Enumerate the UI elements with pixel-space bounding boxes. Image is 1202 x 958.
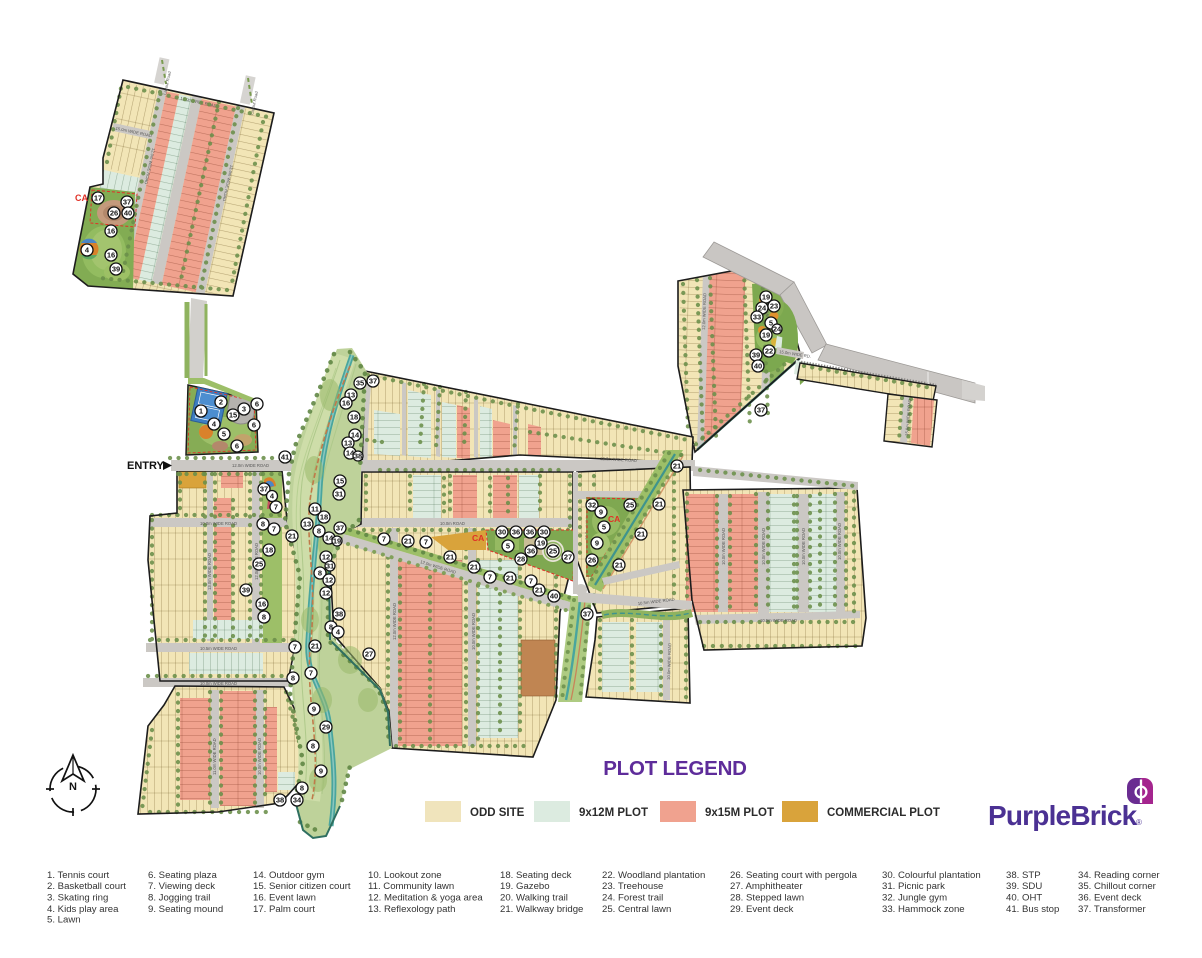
svg-text:41. Bus stop: 41. Bus stop (1006, 904, 1059, 915)
svg-text:10.0m WIDE ROAD: 10.0m WIDE ROAD (200, 521, 237, 526)
svg-text:6: 6 (252, 421, 256, 430)
svg-text:39: 39 (752, 351, 760, 360)
svg-text:CA: CA (75, 193, 88, 203)
svg-text:35. Chillout corner: 35. Chillout corner (1078, 881, 1157, 892)
svg-text:18: 18 (265, 546, 273, 555)
svg-text:21: 21 (673, 462, 681, 471)
svg-text:7: 7 (274, 503, 278, 512)
svg-text:12: 12 (325, 576, 333, 585)
svg-text:ENTRY: ENTRY (127, 460, 165, 472)
svg-text:24: 24 (773, 325, 782, 334)
svg-text:12.0m WIDE ROAD: 12.0m WIDE ROAD (232, 463, 269, 468)
svg-text:24. Forest trail: 24. Forest trail (602, 893, 663, 904)
svg-text:34: 34 (293, 796, 302, 805)
svg-text:7: 7 (488, 573, 492, 582)
svg-text:21: 21 (506, 574, 514, 583)
svg-text:35: 35 (356, 379, 364, 388)
svg-text:4. Kids play area: 4. Kids play area (47, 904, 119, 915)
svg-text:10.0m WIDE ROAD: 10.0m WIDE ROAD (200, 681, 237, 686)
svg-text:8: 8 (311, 742, 315, 751)
svg-text:27. Amphitheater: 27. Amphitheater (730, 881, 803, 892)
svg-text:10.5m WIDE ROAD: 10.5m WIDE ROAD (760, 618, 797, 623)
svg-text:25: 25 (255, 560, 263, 569)
svg-text:26: 26 (588, 556, 596, 565)
svg-text:16: 16 (258, 600, 266, 609)
svg-text:8. Jogging trail: 8. Jogging trail (148, 893, 210, 904)
svg-text:21: 21 (470, 563, 478, 572)
svg-text:5. Lawn: 5. Lawn (47, 915, 81, 926)
svg-text:21: 21 (637, 530, 645, 539)
svg-text:9x15M PLOT: 9x15M PLOT (705, 807, 774, 819)
svg-text:16: 16 (342, 399, 350, 408)
svg-text:37: 37 (757, 406, 765, 415)
svg-text:17. Palm court: 17. Palm court (253, 904, 315, 915)
svg-text:37: 37 (369, 377, 377, 386)
svg-text:17: 17 (94, 194, 102, 203)
svg-text:16. Event lawn: 16. Event lawn (253, 893, 316, 904)
svg-text:14. Outdoor gym: 14. Outdoor gym (253, 870, 324, 881)
svg-text:9: 9 (599, 508, 603, 517)
svg-text:21: 21 (288, 532, 296, 541)
svg-text:7: 7 (424, 538, 428, 547)
svg-text:PLOT LEGEND: PLOT LEGEND (603, 757, 747, 780)
svg-text:ODD SITE: ODD SITE (470, 807, 525, 819)
svg-text:23. Treehouse: 23. Treehouse (602, 881, 663, 892)
svg-text:CA: CA (608, 514, 620, 524)
svg-text:30: 30 (540, 528, 548, 537)
svg-text:28. Stepped lawn: 28. Stepped lawn (730, 893, 804, 904)
svg-text:18: 18 (320, 513, 328, 522)
svg-text:10.0m WIDE ROAD: 10.0m WIDE ROAD (257, 738, 262, 775)
svg-text:33. Hammock zone: 33. Hammock zone (882, 904, 965, 915)
svg-text:16: 16 (107, 227, 115, 236)
svg-text:31. Picnic park: 31. Picnic park (882, 881, 945, 892)
svg-text:40: 40 (124, 209, 132, 218)
svg-text:37. Transformer: 37. Transformer (1078, 904, 1147, 915)
svg-text:27: 27 (564, 553, 572, 562)
svg-text:9: 9 (595, 539, 599, 548)
svg-text:22. Woodland plantation: 22. Woodland plantation (602, 870, 705, 881)
svg-text:36: 36 (512, 528, 520, 537)
svg-text:38. STP: 38. STP (1006, 870, 1041, 881)
svg-text:29. Event deck: 29. Event deck (730, 904, 794, 915)
svg-text:7. Viewing deck: 7. Viewing deck (148, 881, 215, 892)
svg-text:41: 41 (281, 453, 289, 462)
svg-text:21: 21 (615, 561, 623, 570)
svg-text:9. Seating mound: 9. Seating mound (148, 904, 223, 915)
svg-text:39: 39 (242, 586, 250, 595)
svg-text:®: ® (1136, 818, 1142, 827)
svg-text:10.5m WIDE ROAD: 10.5m WIDE ROAD (200, 646, 237, 651)
svg-text:32. Jungle gym: 32. Jungle gym (882, 893, 947, 904)
svg-text:21: 21 (535, 586, 543, 595)
svg-text:32: 32 (588, 501, 596, 510)
svg-text:13: 13 (344, 439, 352, 448)
svg-text:34. Reading corner: 34. Reading corner (1078, 870, 1160, 881)
svg-text:7: 7 (293, 643, 297, 652)
svg-text:18: 18 (350, 413, 358, 422)
svg-text:PurpleBrick: PurpleBrick (988, 800, 1138, 831)
svg-text:40: 40 (550, 592, 558, 601)
svg-text:9: 9 (312, 705, 316, 714)
svg-text:6: 6 (255, 400, 259, 409)
svg-text:10.0m ROAD: 10.0m ROAD (440, 521, 465, 526)
svg-text:COMMERCIAL PLOT: COMMERCIAL PLOT (827, 807, 940, 819)
svg-text:20. Walking trail: 20. Walking trail (500, 893, 568, 904)
svg-text:1. Tennis court: 1. Tennis court (47, 870, 110, 881)
svg-text:10.0m WIDE ROAD: 10.0m WIDE ROAD (471, 613, 476, 650)
svg-text:25: 25 (549, 547, 557, 556)
svg-text:33: 33 (753, 313, 761, 322)
svg-text:12.0m WIDE ROAD: 12.0m WIDE ROAD (392, 603, 397, 640)
svg-text:10.0m WIDE ROAD: 10.0m WIDE ROAD (721, 528, 726, 565)
svg-text:13.0m WIDE ROAD: 13.0m WIDE ROAD (207, 553, 212, 590)
svg-text:27: 27 (365, 650, 373, 659)
svg-text:11.0m WIDE ROAD: 11.0m WIDE ROAD (212, 738, 217, 775)
svg-text:12. Meditation & yoga area: 12. Meditation & yoga area (368, 893, 483, 904)
svg-text:21: 21 (655, 500, 663, 509)
svg-text:11. Community lawn: 11. Community lawn (368, 881, 454, 892)
svg-text:30. Colourful plantation: 30. Colourful plantation (882, 870, 981, 881)
svg-text:3. Skating ring: 3. Skating ring (47, 893, 108, 904)
svg-text:40: 40 (754, 362, 762, 371)
svg-text:21: 21 (404, 537, 412, 546)
svg-text:N: N (69, 781, 77, 793)
svg-text:15: 15 (336, 477, 344, 486)
svg-text:21. Walkway bridge: 21. Walkway bridge (500, 904, 583, 915)
svg-text:7: 7 (529, 577, 533, 586)
svg-text:7: 7 (309, 669, 313, 678)
svg-text:30: 30 (498, 528, 506, 537)
svg-text:2. Basketball court: 2. Basketball court (47, 881, 126, 892)
svg-text:10.0m WIDE ROAD: 10.0m WIDE ROAD (837, 523, 842, 560)
svg-text:31: 31 (335, 490, 343, 499)
svg-text:37: 37 (260, 485, 268, 494)
svg-text:12: 12 (322, 553, 330, 562)
svg-text:8: 8 (318, 569, 322, 578)
svg-text:40. OHT: 40. OHT (1006, 893, 1042, 904)
svg-text:3: 3 (242, 405, 246, 414)
svg-text:6: 6 (235, 442, 239, 451)
svg-text:5: 5 (506, 542, 510, 551)
svg-text:26. Seating court with pergola: 26. Seating court with pergola (730, 870, 858, 881)
svg-text:19. Gazebo: 19. Gazebo (500, 881, 550, 892)
svg-text:7: 7 (272, 525, 276, 534)
svg-text:37: 37 (336, 524, 344, 533)
svg-text:39: 39 (112, 265, 120, 274)
svg-text:36: 36 (527, 547, 535, 556)
svg-text:38: 38 (335, 610, 343, 619)
svg-text:2: 2 (219, 398, 223, 407)
svg-text:5: 5 (602, 523, 606, 532)
svg-text:15: 15 (229, 411, 237, 420)
svg-text:10.0m WIDE ROAD: 10.0m WIDE ROAD (761, 528, 766, 565)
svg-text:25. Central lawn: 25. Central lawn (602, 904, 671, 915)
svg-text:36: 36 (526, 528, 534, 537)
svg-text:36. Event deck: 36. Event deck (1078, 893, 1142, 904)
svg-text:10.0m WIDE ROAD: 10.0m WIDE ROAD (801, 528, 806, 565)
svg-text:25: 25 (626, 501, 634, 510)
svg-text:9x12M PLOT: 9x12M PLOT (579, 807, 648, 819)
svg-text:23: 23 (770, 302, 778, 311)
svg-text:18. Seating deck: 18. Seating deck (500, 870, 572, 881)
svg-text:11: 11 (311, 505, 319, 514)
svg-text:19: 19 (333, 537, 341, 546)
svg-text:21: 21 (446, 553, 454, 562)
svg-text:29: 29 (322, 723, 330, 732)
svg-text:38: 38 (354, 452, 362, 461)
svg-text:8: 8 (300, 784, 304, 793)
svg-text:13. Reflexology path: 13. Reflexology path (368, 904, 455, 915)
svg-text:19: 19 (762, 293, 770, 302)
svg-text:19: 19 (762, 331, 770, 340)
svg-text:26: 26 (110, 209, 118, 218)
svg-text:CA: CA (472, 533, 484, 543)
svg-text:8: 8 (262, 613, 266, 622)
svg-text:19: 19 (537, 539, 545, 548)
svg-text:15. Senior citizen court: 15. Senior citizen court (253, 881, 351, 892)
svg-text:38: 38 (276, 796, 284, 805)
svg-text:1: 1 (199, 407, 203, 416)
svg-text:12: 12 (322, 589, 330, 598)
svg-text:31: 31 (326, 562, 334, 571)
svg-text:22: 22 (765, 347, 773, 356)
svg-text:28: 28 (517, 555, 525, 564)
svg-text:8: 8 (261, 520, 265, 529)
svg-text:7: 7 (382, 535, 386, 544)
svg-text:13: 13 (303, 520, 311, 529)
svg-text:5: 5 (222, 430, 226, 439)
svg-text:8: 8 (291, 674, 295, 683)
svg-text:39. SDU: 39. SDU (1006, 881, 1042, 892)
svg-text:8: 8 (317, 527, 321, 536)
svg-text:37: 37 (123, 198, 131, 207)
svg-text:6. Seating plaza: 6. Seating plaza (148, 870, 217, 881)
svg-text:21: 21 (311, 642, 319, 651)
svg-text:10. Lookout zone: 10. Lookout zone (368, 870, 442, 881)
svg-text:37: 37 (583, 610, 591, 619)
svg-text:16: 16 (107, 251, 115, 260)
svg-text:9: 9 (319, 767, 323, 776)
